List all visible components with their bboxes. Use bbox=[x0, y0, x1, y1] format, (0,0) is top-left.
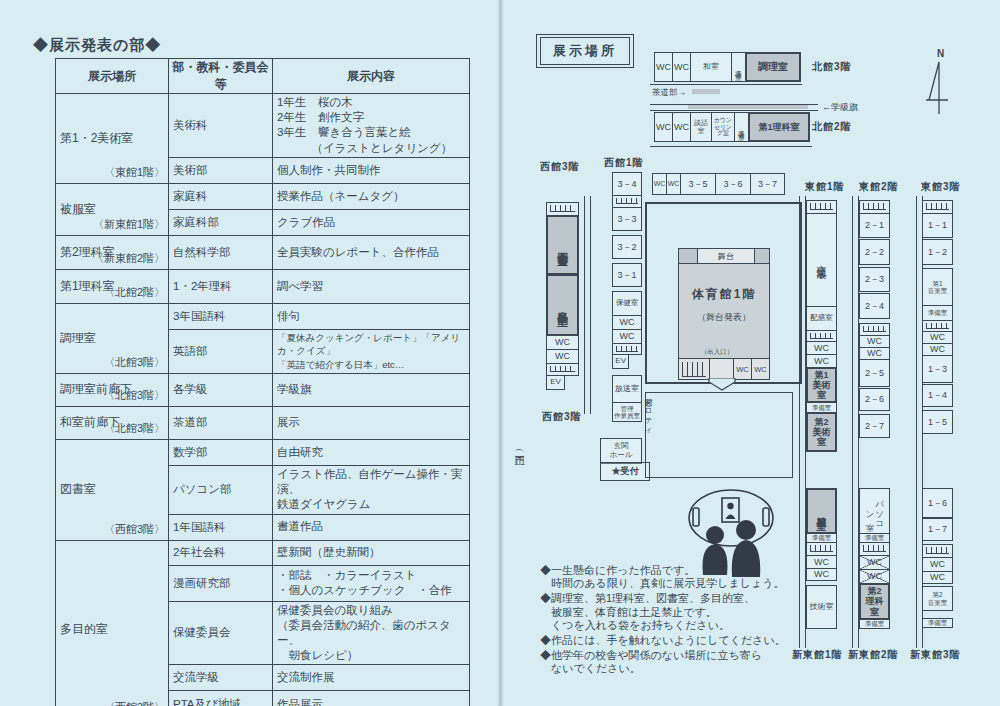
floor-map-page: 展示場所 N WCWC和室準備室調理室 北館3階 茶道部→ ←学級旗 WCWC談… bbox=[500, 0, 1000, 706]
map-room-highlight: 第1理科室 bbox=[748, 112, 810, 142]
map-room: 1－5 bbox=[922, 410, 953, 434]
map-room-highlight: 多目的室 bbox=[546, 274, 579, 336]
map-wc: WC bbox=[654, 52, 673, 82]
map-room: 第2 音楽室 bbox=[922, 586, 953, 611]
table-header-row: 展示場所 部・教科・委員会等 展示内容 bbox=[56, 59, 470, 94]
map-room: 2－2 bbox=[859, 239, 890, 265]
exhibit-location-cell: 図書室〈西館3階〉 bbox=[56, 439, 169, 540]
exhibit-content-cell: 授業作品（ネームタグ） bbox=[273, 183, 470, 209]
exhibit-content-cell: イラスト作品、自作ゲーム操作・実演、 鉄道ダイヤグラム bbox=[273, 465, 470, 514]
table-row: 被服室〈新東館1階〉 家庭科 授業作品（ネームタグ） bbox=[56, 183, 470, 209]
exhibit-org-cell: 3年国語科 bbox=[169, 303, 273, 329]
table-row: 第2理科室〈新東館2階〉 自然科学部 全員実験のレポート、合作作品 bbox=[56, 235, 470, 269]
map-room: 準備室 bbox=[922, 618, 953, 628]
table-row: 多目的室〈西館3階〉 2年社会科 壁新聞（歴史新聞） bbox=[56, 540, 470, 565]
exhibit-location-cell: 多目的室〈西館3階〉 bbox=[56, 540, 169, 706]
exhibit-content-cell: 1年生 桜の木 2年生 創作文字 3年生 響き合う言葉と絵 （イラストとレタリン… bbox=[273, 94, 470, 158]
gym-stage-strip: 舞台 bbox=[679, 249, 769, 264]
map-room: 管理 作業員室 bbox=[612, 402, 642, 422]
map-line bbox=[650, 84, 802, 85]
gym-name: 体育館1階 bbox=[679, 286, 769, 303]
stage-side-cell bbox=[754, 249, 769, 263]
map-room: 3－5 bbox=[680, 173, 716, 195]
exhibit-org-cell: 家庭科 bbox=[169, 183, 273, 209]
north-building-3f-strip: WCWC和室準備室調理室 bbox=[654, 52, 801, 82]
map-line bbox=[650, 146, 812, 147]
exhibit-org-cell: 交流学級 bbox=[169, 665, 273, 691]
exhibit-content-cell: 調べ学習 bbox=[273, 269, 470, 303]
gym-wc: WC bbox=[733, 359, 751, 379]
exhibit-content-cell: 書道作品 bbox=[273, 514, 470, 540]
map-room: 2－5 bbox=[859, 359, 890, 387]
east-3f-label: 東館3階 bbox=[921, 180, 961, 194]
exhibit-org-cell: 数学部 bbox=[169, 439, 273, 465]
exhibit-content-cell: 学級旗 bbox=[273, 373, 470, 406]
note-item: ◆作品には、手を触れないようにしてください。 bbox=[540, 634, 875, 647]
gym-floor: 体育館1階 （舞台発表） （出入口） bbox=[679, 264, 769, 358]
map-legend-box: 展示場所 bbox=[536, 34, 634, 68]
exhibit-org-cell: 英語部 bbox=[169, 329, 273, 373]
map-stairs-icon bbox=[859, 542, 890, 556]
north-2f-label: 北館2階 bbox=[812, 120, 852, 134]
map-room-highlight: 第2 美術 室 bbox=[806, 412, 837, 452]
map-room: 3－7 bbox=[750, 173, 785, 195]
exhibit-org-cell: 1・2年理科 bbox=[169, 269, 273, 303]
map-stairs-icon bbox=[546, 202, 579, 216]
gym-exit-label: （出入口） bbox=[679, 348, 755, 357]
map-wc: WC bbox=[612, 315, 642, 330]
map-wc: WC bbox=[666, 173, 681, 195]
class-flag-strip bbox=[688, 105, 808, 109]
exhibit-table: 展示場所 部・教科・委員会等 展示内容 第1・2美術室〈東館1階〉 美術科 1年… bbox=[55, 58, 470, 706]
exhibit-org-cell: 各学級 bbox=[169, 373, 273, 406]
exhibit-content-cell: 展示 bbox=[273, 406, 470, 439]
west-3f-bottom-label: 西館3階 bbox=[542, 410, 582, 424]
exhibit-org-cell: 2年社会科 bbox=[169, 540, 273, 565]
map-room: 1－4 bbox=[922, 384, 953, 407]
exhibit-content-cell: クラブ作品 bbox=[273, 209, 470, 235]
map-room: 準備室 bbox=[734, 112, 749, 142]
exhibit-org-cell: 美術部 bbox=[169, 157, 273, 183]
north-building-2f-strip: WCWC談話 室カウン セリン グ室準備室第1理科室 bbox=[654, 112, 810, 142]
scanned-program-page: ◆展示発表の部◆ 展示場所 部・教科・委員会等 展示内容 第1・2美術室〈東館1… bbox=[0, 0, 1000, 706]
east-3f-column: 1－11－2第1 音楽室準備室WCWC1－31－41－5 bbox=[922, 200, 953, 434]
west-building-3f-column: 図書室多目的室WCWCEV bbox=[546, 202, 579, 390]
map-room: 3－1 bbox=[612, 263, 642, 287]
map-room-highlight: 調理室 bbox=[745, 52, 801, 82]
map-room: 2－3 bbox=[859, 267, 890, 292]
stage-side-cell bbox=[679, 249, 698, 263]
main-gate-label: （正門） bbox=[512, 446, 526, 506]
map-room: 和室 bbox=[690, 52, 732, 82]
class-flag-note: ←学級旗 bbox=[822, 101, 858, 114]
tea-club-display-strip bbox=[692, 89, 720, 94]
exhibit-content-cell: 作品展示 bbox=[273, 691, 470, 706]
map-elevator-box: EV bbox=[612, 354, 629, 369]
table-row: 和室前廊下〈北館3階〉 茶道部 展示 bbox=[56, 406, 470, 439]
map-room: 1－7 bbox=[922, 518, 953, 541]
exhibit-org-cell: 1年国語科 bbox=[169, 514, 273, 540]
map-room: 3－4 bbox=[612, 172, 642, 196]
map-room: カウン セリン グ室 bbox=[711, 112, 735, 142]
map-room: 3－2 bbox=[612, 235, 642, 259]
gym-wc: WC bbox=[751, 359, 769, 379]
map-room: 3－6 bbox=[715, 173, 751, 195]
compass-icon bbox=[924, 60, 952, 118]
map-room: 第1 音楽室 bbox=[922, 268, 953, 306]
gym-entrance-gap bbox=[710, 359, 733, 379]
map-wc: WC bbox=[546, 349, 579, 364]
map-wc: WC bbox=[672, 112, 691, 142]
exhibit-org-cell: 漫画研究部 bbox=[169, 565, 273, 601]
west-building-1f-column: 3－43－33－23－1保健室WCWCEV放送室管理 作業員室 bbox=[612, 172, 642, 422]
map-room: 2－1 bbox=[859, 213, 890, 238]
table-row: 図書室〈西館3階〉 数学部 自由研究 bbox=[56, 439, 470, 465]
new-east-3f-label: 新東館3階 bbox=[910, 648, 961, 662]
page-fold bbox=[497, 0, 504, 706]
exhibit-org-cell: PTA及び地域 bbox=[169, 691, 273, 706]
exhibit-location-cell: 第2理科室〈新東館2階〉 bbox=[56, 235, 169, 269]
exhibit-content-cell: 自由研究 bbox=[273, 439, 470, 465]
map-wc: WC bbox=[546, 335, 579, 350]
exhibit-content-cell: ・部誌 ・カラーイラスト ・個人のスケッチブック ・合作 bbox=[273, 565, 470, 601]
entrance-hall-box: 玄関 ホール bbox=[600, 438, 642, 464]
west-1f-label: 西館1階 bbox=[604, 156, 644, 170]
table-row: 調理室前廊下〈北館3階〉 各学級 学級旗 bbox=[56, 373, 470, 406]
exhibit-location-cell: 第1・2美術室〈東館1階〉 bbox=[56, 94, 169, 184]
gym-porch-shape bbox=[708, 378, 736, 391]
exhibit-org-cell: 自然科学部 bbox=[169, 235, 273, 269]
visitor-notes: ◆一生懸命に作った作品です。 時間のある限り、真剣に展示見学しましょう。 ◆調理… bbox=[540, 564, 875, 678]
map-room: 2－7 bbox=[859, 414, 890, 438]
page-title: ◆展示発表の部◆ bbox=[33, 36, 161, 55]
map-wc: WC bbox=[672, 52, 691, 82]
map-stairs-icon bbox=[806, 542, 837, 556]
exhibit-org-cell: 美術科 bbox=[169, 94, 273, 158]
exhibit-org-cell: パソコン部 bbox=[169, 465, 273, 514]
column-header: 展示場所 bbox=[56, 59, 169, 94]
map-room-highlight: 第1 美術 室 bbox=[806, 367, 837, 403]
gymnasium-block: 舞台 体育館1階 （舞台発表） （出入口） WC WC bbox=[678, 248, 770, 380]
exhibit-content-cell: 壁新聞（歴史新聞） bbox=[273, 540, 470, 565]
map-stairs-icon bbox=[859, 200, 890, 214]
table-row: 第1理科室〈北館2階〉 1・2年理科 調べ学習 bbox=[56, 269, 470, 303]
exhibit-location-cell: 第1理科室〈北館2階〉 bbox=[56, 269, 169, 303]
map-corridor bbox=[584, 196, 591, 414]
map-wc: WC bbox=[922, 557, 953, 572]
map-room: 3－3 bbox=[612, 207, 642, 231]
map-room: 放送室 bbox=[612, 375, 642, 403]
map-room: 1－6 bbox=[922, 488, 953, 518]
exhibit-content-cell: 全員実験のレポート、合作作品 bbox=[273, 235, 470, 269]
piloti-block bbox=[645, 392, 793, 478]
column-header: 部・教科・委員会等 bbox=[169, 59, 273, 94]
new-east-3f-column: 1－61－7WCWC第2 音楽室準備室 bbox=[922, 488, 953, 628]
exhibit-list-page: ◆展示発表の部◆ 展示場所 部・教科・委員会等 展示内容 第1・2美術室〈東館1… bbox=[0, 0, 500, 706]
north-3f-label: 北館3階 bbox=[812, 60, 852, 74]
map-elevator-box: EV bbox=[546, 375, 565, 390]
exhibit-content-cell: 保健委員会の取り組み （委員会活動の紹介、歯のポスター、 朝食レシピ） bbox=[273, 601, 470, 665]
table-row: 調理室〈北館3階〉 3年国語科 俳句 bbox=[56, 303, 470, 329]
gym-stairs-icon bbox=[679, 359, 710, 379]
stage-label: 舞台 bbox=[698, 249, 754, 263]
map-wc: WC bbox=[612, 329, 642, 344]
map-room: 1－3 bbox=[922, 355, 953, 383]
map-room-highlight: 被服室 bbox=[806, 488, 837, 534]
map-room: パソコン室 bbox=[859, 488, 890, 534]
map-room: 2－4 bbox=[859, 293, 890, 319]
east-1f-column: 交流学級配膳室WCWC第1 美術 室準備室第2 美術 室 bbox=[806, 200, 837, 452]
map-room: 準備室 bbox=[922, 305, 953, 321]
exhibit-org-cell: 家庭科部 bbox=[169, 209, 273, 235]
exhibit-content-cell: 「夏休みクッキング・レポート」「アメリカ・クイズ」 「英語で紹介する日本」etc… bbox=[273, 329, 470, 373]
map-room: 準備室 bbox=[731, 52, 746, 82]
exhibit-content-cell: 俳句 bbox=[273, 303, 470, 329]
note-item: ◆他学年の校舎や関係のない場所に立ち寄ら ないでください。 bbox=[540, 649, 875, 675]
exhibit-org-cell: 茶道部 bbox=[169, 406, 273, 439]
table-row: 第1・2美術室〈東館1階〉 美術科 1年生 桜の木 2年生 創作文字 3年生 響… bbox=[56, 94, 470, 158]
exhibit-location-cell: 和室前廊下〈北館3階〉 bbox=[56, 406, 169, 439]
map-wc: WC bbox=[654, 112, 673, 142]
west-3f-top-label: 西館3階 bbox=[540, 160, 580, 174]
map-legend-title: 展示場所 bbox=[540, 37, 630, 65]
east-2f-label: 東館2階 bbox=[859, 180, 899, 194]
map-room: 配膳室 bbox=[806, 306, 837, 331]
map-room: 保健室 bbox=[612, 291, 642, 316]
exhibit-org-cell: 保健委員会 bbox=[169, 601, 273, 665]
exhibit-location-cell: 調理室〈北館3階〉 bbox=[56, 303, 169, 373]
column-header: 展示内容 bbox=[273, 59, 470, 94]
gym-foot-strip: WC WC bbox=[679, 358, 769, 379]
map-room: 2－6 bbox=[859, 388, 890, 411]
east-2f-column: 2－12－22－32－4WCWC2－52－62－7 bbox=[859, 200, 890, 438]
exhibit-location-cell: 被服室〈新東館1階〉 bbox=[56, 183, 169, 235]
tea-club-note: 茶道部→ bbox=[652, 87, 686, 99]
map-room-highlight: 図書室 bbox=[546, 215, 579, 275]
gym-subtitle: （舞台発表） bbox=[679, 311, 769, 324]
map-wc: WC bbox=[652, 173, 667, 195]
map-stairs-icon bbox=[922, 544, 953, 558]
west-classroom-strip: WCWC3－53－63－7 bbox=[652, 173, 785, 195]
exhibit-content-cell: 個人制作・共同制作 bbox=[273, 157, 470, 183]
map-stairs-icon bbox=[806, 200, 837, 214]
map-wc: WC bbox=[806, 341, 837, 355]
map-room: 1－1 bbox=[922, 213, 953, 238]
exhibit-content-cell: 交流制作展 bbox=[273, 665, 470, 691]
east-1f-label: 東館1階 bbox=[805, 180, 845, 194]
map-wc: WC bbox=[806, 354, 837, 368]
map-room: 談話 室 bbox=[690, 112, 712, 142]
map-room: 交流学級 bbox=[806, 213, 837, 307]
exhibit-location-cell: 調理室前廊下〈北館3階〉 bbox=[56, 373, 169, 406]
reception-box: ★受付 bbox=[600, 462, 650, 481]
map-stairs-icon bbox=[922, 200, 953, 214]
note-item: ◆調理室、第1理科室、図書室、多目的室、 被服室、体育館は土足禁止です。 くつを… bbox=[540, 592, 875, 632]
map-room: 1－2 bbox=[922, 239, 953, 265]
compass-north-label: N bbox=[937, 48, 945, 59]
note-item: ◆一生懸命に作った作品です。 時間のある限り、真剣に展示見学しましょう。 bbox=[540, 564, 875, 590]
